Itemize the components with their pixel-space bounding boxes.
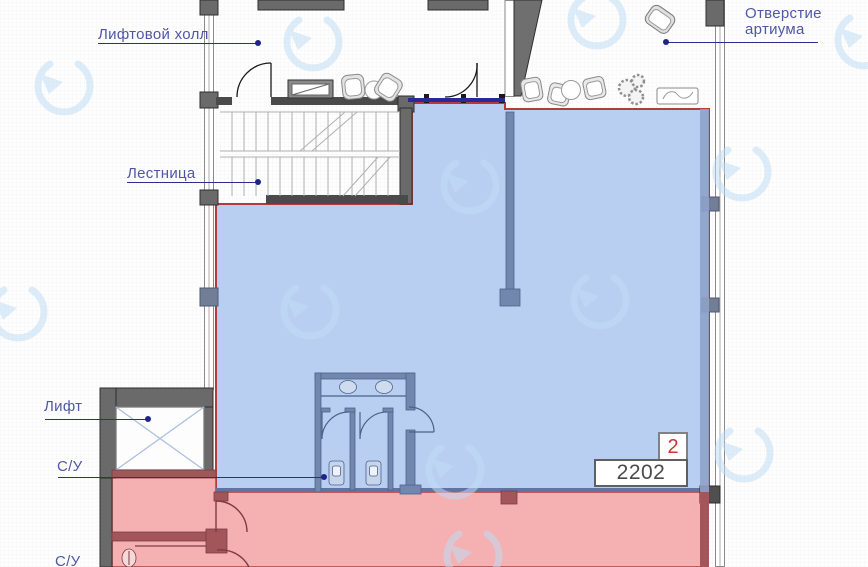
label-lift-hall: Лифтовой холл [98, 27, 209, 43]
leader-lift [45, 419, 149, 420]
armchair [643, 3, 677, 36]
toilet [366, 461, 381, 485]
entry-threshold [408, 98, 505, 102]
sink [340, 381, 357, 394]
bench [657, 88, 698, 104]
label-atrium-line1: Отверстие [745, 6, 822, 22]
staircase [220, 112, 400, 196]
label-atrium-line2: артиума [745, 22, 822, 38]
leader-dot [663, 39, 669, 45]
label-stairs: Лестница [127, 166, 196, 182]
toilet [122, 549, 136, 567]
floor-plan-svg [0, 0, 868, 567]
plant [619, 75, 644, 104]
floor-badge[interactable]: 2 [658, 432, 688, 462]
leader-atrium-opening [666, 42, 818, 43]
unit-boundary-line [216, 488, 709, 492]
leader-dot [255, 40, 261, 46]
label-wc-upper: С/У [57, 459, 82, 475]
sink [376, 381, 393, 394]
leader-lift-hall [98, 43, 258, 44]
label-wc-lower: С/У [55, 554, 80, 567]
unit-number[interactable]: 2202 [594, 459, 688, 487]
leader-dot [321, 474, 327, 480]
label-atrium-opening: Отверстие артиума [745, 6, 822, 38]
leader-dot [145, 416, 151, 422]
furniture-atrium [520, 3, 698, 107]
label-lift: Лифт [44, 399, 82, 415]
toilet [329, 461, 344, 485]
floor-plan-page: Лифтовой холл Отверстие артиума Лестница… [0, 0, 868, 567]
leader-stairs [127, 182, 258, 183]
leader-wc-upper [58, 477, 324, 478]
leader-dot [255, 179, 261, 185]
unit-2202-area[interactable] [216, 103, 709, 492]
